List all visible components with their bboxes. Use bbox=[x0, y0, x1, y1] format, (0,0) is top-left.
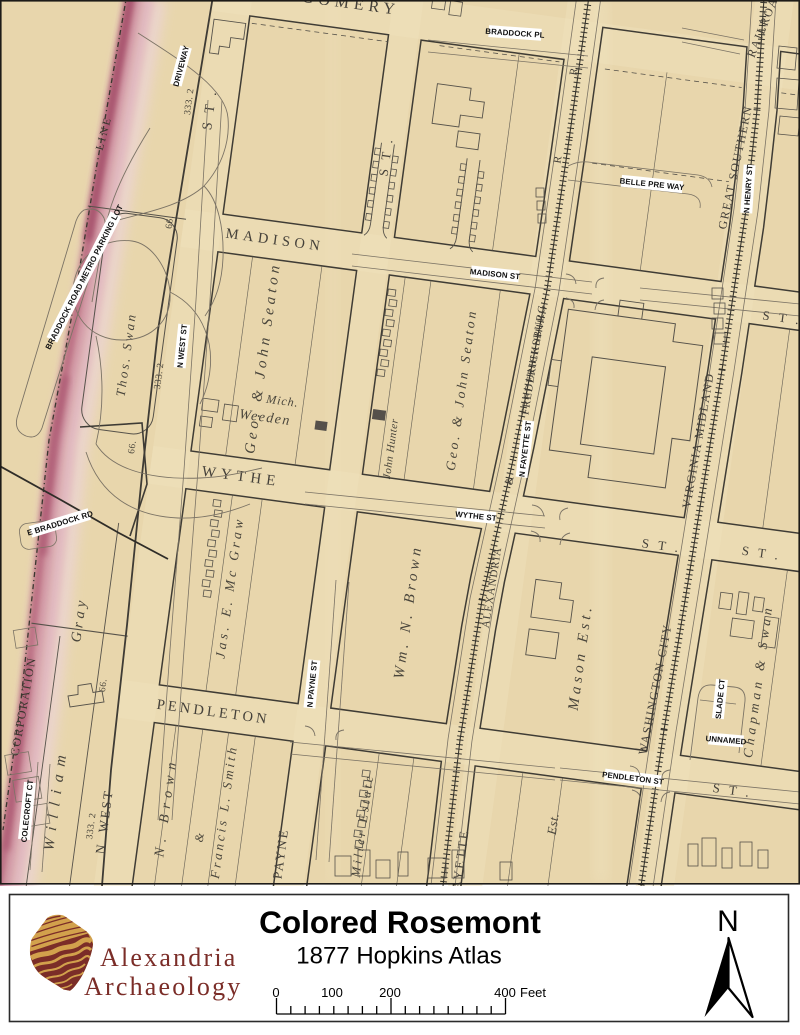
svg-text:400: 400 bbox=[494, 985, 516, 1000]
svg-text:100: 100 bbox=[321, 985, 343, 1000]
svg-text:Alexandria: Alexandria bbox=[100, 943, 238, 972]
svg-text:0: 0 bbox=[272, 985, 279, 1000]
svg-text:Colored Rosemont: Colored Rosemont bbox=[259, 904, 541, 940]
svg-text:Archaeology: Archaeology bbox=[84, 972, 242, 1001]
svg-text:N: N bbox=[717, 905, 739, 938]
svg-text:&: & bbox=[503, 475, 516, 486]
svg-text:Feet: Feet bbox=[520, 985, 546, 1000]
svg-text:1877 Hopkins Atlas: 1877 Hopkins Atlas bbox=[296, 943, 501, 970]
svg-text:66.: 66. bbox=[98, 678, 110, 693]
svg-text:200: 200 bbox=[379, 985, 401, 1000]
svg-text:66.: 66. bbox=[127, 440, 139, 455]
svg-text:Est.: Est. bbox=[544, 812, 562, 837]
